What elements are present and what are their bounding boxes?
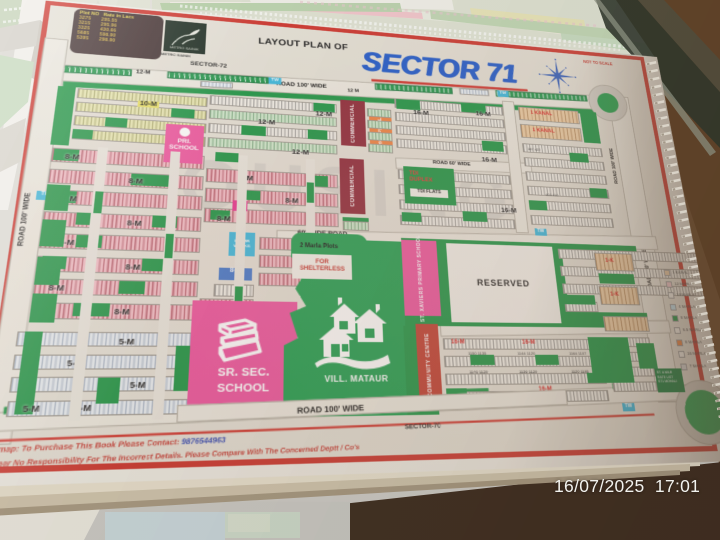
svg-text:METRO SAINIK: METRO SAINIK bbox=[170, 46, 200, 52]
